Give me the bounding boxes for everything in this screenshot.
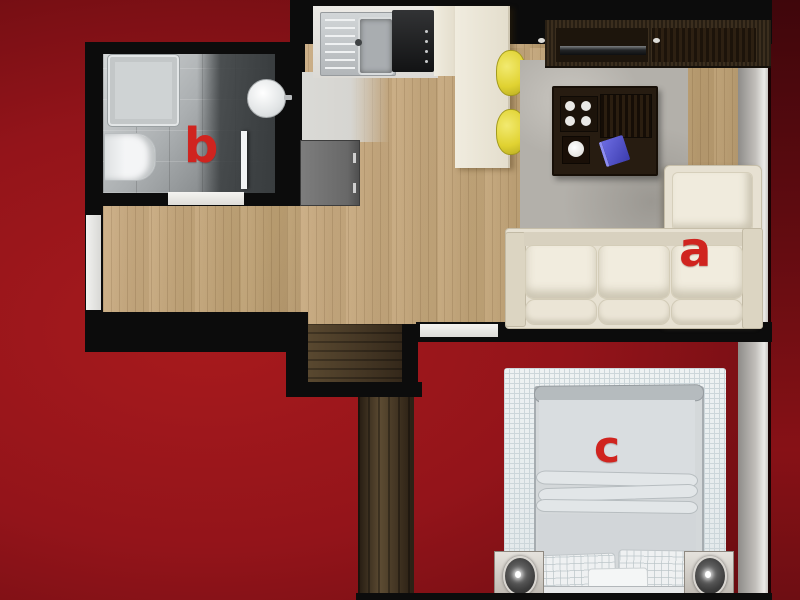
label-c: c xyxy=(594,426,620,470)
sofa-cushion xyxy=(525,245,597,299)
basin-faucet xyxy=(355,39,362,46)
sofa xyxy=(505,165,761,327)
table-tray xyxy=(562,136,590,164)
tv-console xyxy=(545,20,771,68)
lamp-light xyxy=(705,571,711,578)
sofa-cushion xyxy=(598,245,670,299)
sofa-seat-pad xyxy=(525,299,597,325)
kitchen-sink xyxy=(320,12,396,76)
floor-plan-render: b a c xyxy=(0,0,800,600)
bedroom-bottom-wall xyxy=(356,593,772,600)
lamp-light xyxy=(515,571,521,578)
entry-door-left xyxy=(86,215,101,310)
stove-knob xyxy=(425,60,428,63)
round-sink xyxy=(247,79,286,118)
bed xyxy=(534,386,704,600)
sofa-arm-left xyxy=(505,232,526,327)
console-panel xyxy=(652,28,756,62)
cabinet-handle xyxy=(353,153,356,163)
sink-basin xyxy=(358,17,394,75)
toilet xyxy=(104,133,156,181)
stove-knob xyxy=(425,30,428,33)
nightstand-left xyxy=(494,551,544,598)
shower-mat xyxy=(108,55,179,126)
nightstand-right xyxy=(684,551,734,598)
right-red-border xyxy=(768,0,800,600)
counter-corner xyxy=(434,6,455,76)
wardrobe xyxy=(358,388,414,596)
cabinet-handle xyxy=(353,183,356,193)
console-dot xyxy=(538,38,545,43)
gray-cabinet xyxy=(300,140,360,206)
glass-door xyxy=(241,131,247,189)
hall-bottom-wall xyxy=(85,312,308,352)
coaster xyxy=(565,101,575,111)
tv-recess xyxy=(556,28,648,62)
bedroom-door-threshold xyxy=(420,324,498,337)
coaster xyxy=(565,116,575,126)
sofa-seat-pad xyxy=(598,299,670,325)
stove-knob xyxy=(425,50,428,53)
kitchen-work-floor xyxy=(302,72,390,142)
table-slats xyxy=(600,94,652,138)
coffee-table xyxy=(552,86,658,176)
label-a: a xyxy=(679,226,711,274)
sofa-arm-right xyxy=(742,228,763,329)
coaster xyxy=(581,116,591,126)
label-b: b xyxy=(184,122,218,170)
table-panel xyxy=(560,96,598,132)
bathroom-door-threshold xyxy=(168,192,244,205)
stove xyxy=(392,10,434,72)
coaster xyxy=(581,101,591,111)
stove-knob xyxy=(425,40,428,43)
drainboard xyxy=(325,19,355,69)
blanket-fold xyxy=(536,499,698,514)
sofa-seat-pad xyxy=(671,299,743,325)
console-dot xyxy=(653,38,660,43)
hallway-floor xyxy=(103,200,318,316)
blue-book xyxy=(599,135,631,167)
tv-screen xyxy=(560,46,646,55)
plate xyxy=(568,141,584,157)
sink-faucet xyxy=(284,95,292,100)
